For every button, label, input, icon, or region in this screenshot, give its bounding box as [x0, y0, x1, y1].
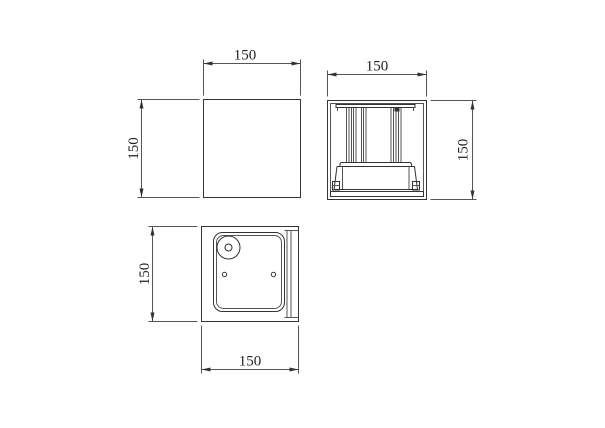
bottom-width-dimension: 150: [202, 326, 299, 374]
extension-lines: [204, 60, 301, 96]
side-section-view: 150 150: [328, 59, 477, 200]
bottom-height-dimension: 150: [137, 227, 198, 322]
side-width-dimension: 150: [328, 59, 427, 97]
front-face-outline: [204, 100, 301, 198]
housing-inner-walls: [343, 167, 410, 190]
housing-sides: [334, 167, 418, 190]
inner-frame: [331, 104, 424, 197]
cable-gland-outer-circle: [217, 236, 240, 259]
cable-gland-inner-circle: [225, 244, 232, 251]
bottom-width-dim-label: 150: [239, 354, 262, 370]
side-bracket-edge: [285, 231, 299, 318]
side-width-dim-label: 150: [366, 59, 389, 75]
top-mounting-plate: [336, 105, 415, 108]
side-height-dim-label: 150: [455, 139, 471, 162]
front-width-dimension: 150: [204, 48, 301, 96]
rod-screw: [395, 108, 400, 112]
left-rod-cluster: [347, 108, 357, 163]
bottom-view: 150 150: [137, 227, 299, 374]
driver-housing: [331, 163, 424, 197]
center-rod: [362, 108, 367, 163]
front-height-dimension: 150: [126, 100, 200, 198]
front-view: 150 150: [126, 48, 301, 198]
bottom-plate: [331, 192, 424, 197]
back-plate-inner: [217, 236, 282, 309]
housing-cap: [340, 163, 412, 167]
extension-lines: [138, 100, 200, 198]
technical-drawing-canvas: 150 150: [0, 0, 605, 428]
screw-hole-left: [222, 272, 226, 276]
bottom-height-dim-label: 150: [137, 263, 153, 286]
screw-hole-right: [271, 272, 275, 276]
right-rod-cluster: [391, 108, 401, 163]
extension-lines: [149, 227, 198, 322]
three-view-drawing: 150 150: [0, 0, 605, 428]
side-height-dimension: 150: [431, 101, 477, 200]
front-height-dim-label: 150: [126, 137, 142, 160]
front-width-dim-label: 150: [234, 48, 257, 64]
